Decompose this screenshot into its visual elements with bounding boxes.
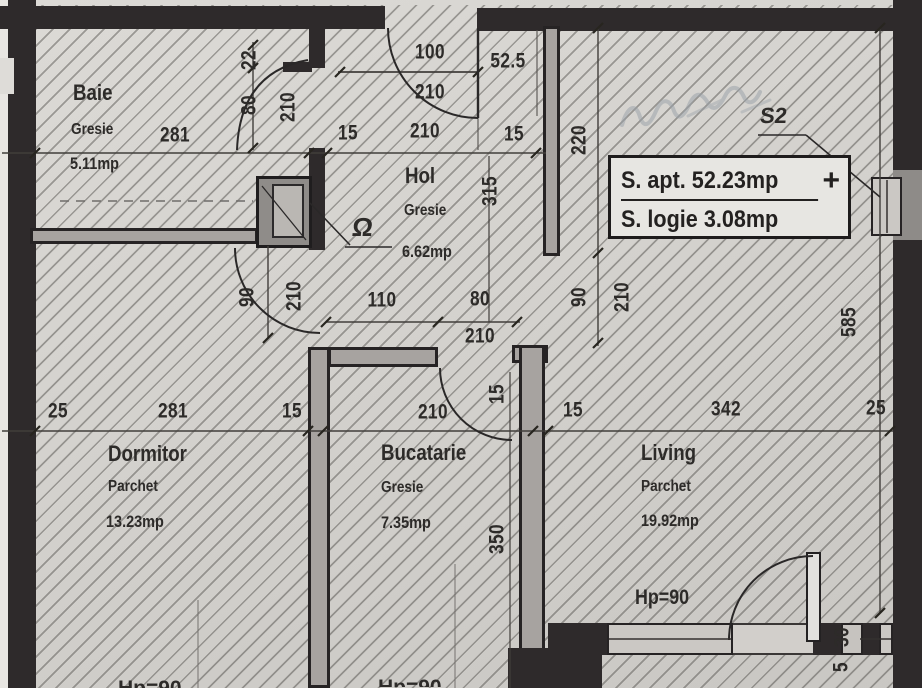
room-dormitor-name: Dormitor <box>108 441 187 467</box>
wall-right <box>893 0 922 688</box>
living-window-small <box>879 623 893 655</box>
dim-balcony-gap: 5 <box>831 662 852 672</box>
room-dormitor-finish: Parchet <box>108 478 158 496</box>
dim-kitchen-door-height: 210 <box>465 326 495 347</box>
shaft-inner <box>272 184 304 238</box>
wall-left <box>8 0 36 688</box>
dim-row-dorm: 281 <box>158 401 188 422</box>
room-bucatarie-finish: Gresie <box>381 479 423 497</box>
wall-dorm-kitchen <box>308 347 330 688</box>
room-bucatarie-area: 7.35mp <box>381 513 431 533</box>
dim-row-wall-b: 15 <box>563 400 583 421</box>
dim-hol-width: 210 <box>410 121 440 142</box>
area-summary-box: S. apt. 52.23mp S. logie 3.08mp + <box>608 155 851 239</box>
dim-kitchen-jamb: 15 <box>487 384 508 404</box>
parapet-label-left-clipped: Hp=90 <box>118 677 228 688</box>
wall-balcony-right <box>863 623 879 655</box>
room-baie-name: Baie <box>73 80 113 106</box>
dim-row-wall-a: 15 <box>282 401 302 422</box>
room-living-name: Living <box>641 440 696 466</box>
dim-wall-top-right: 15 <box>504 124 524 145</box>
dim-row-wall-right: 25 <box>866 398 886 419</box>
room-bucatarie-name: Bucatarie <box>381 440 466 466</box>
wall-baie-niche <box>283 62 312 72</box>
shaft-mark: Ω <box>347 212 377 245</box>
dim-dorm-door-width: 90 <box>237 287 258 307</box>
room-hol-name: Hol <box>405 163 435 189</box>
parapet-mid-text: Hp=90 <box>378 676 442 687</box>
wall-left-notch <box>0 58 14 94</box>
dim-hol-door-width: 90 <box>569 287 590 307</box>
room-baie-finish: Gresie <box>71 121 113 139</box>
s2-window <box>871 177 902 236</box>
dim-wall-top-left: 15 <box>338 123 358 144</box>
balcony-door-leaf <box>806 552 821 642</box>
plus-sign: + <box>822 164 840 198</box>
dim-row-wall-left: 25 <box>48 401 68 422</box>
dim-row-living: 342 <box>711 399 741 420</box>
parapet-label-mid-clipped: Hp=90 <box>378 676 488 687</box>
floor-plan: 100 210 52.5 281 15 210 15 110 80 210 25… <box>0 0 922 688</box>
s2-window-mark: S2 <box>756 103 792 131</box>
dim-kitchen-door-offset: 110 <box>367 290 396 311</box>
wall-kitchen-living <box>519 345 545 688</box>
dim-dorm-door-height: 210 <box>284 281 305 311</box>
balcony-door-opening <box>733 623 813 655</box>
room-living-finish: Parchet <box>641 478 691 496</box>
dim-balcony-wall: 30 <box>832 627 853 647</box>
apt-area-row: S. apt. 52.23mp <box>621 162 818 201</box>
wall-kitchen-top <box>328 347 438 367</box>
dim-kitchen-door-width: 80 <box>470 289 490 310</box>
parapet-label: Hp=90 <box>635 586 689 610</box>
dim-hol-length: 315 <box>480 176 501 206</box>
dim-entrance-width: 100 <box>415 42 445 63</box>
dim-row-kitchen: 210 <box>418 402 448 423</box>
room-baie-area: 5.11mp <box>70 154 119 174</box>
room-hol-finish: Gresie <box>404 202 446 220</box>
room-living-area: 19.92mp <box>641 511 699 531</box>
dim-baie-width: 281 <box>160 125 190 146</box>
wall-top-left <box>0 6 385 29</box>
dim-baie-door-width: 80 <box>239 95 260 115</box>
dim-hol-wall: 220 <box>569 125 590 155</box>
dim-niche: 52.5 <box>490 51 525 72</box>
living-window <box>607 623 733 655</box>
dim-kitchen-length: 350 <box>487 524 508 554</box>
dim-baie-door-offset: 22 <box>239 50 260 70</box>
logie-area-row: S. logie 3.08mp <box>621 201 818 238</box>
wall-logie-corner <box>508 648 602 688</box>
room-hol-area: 6.62mp <box>402 242 452 262</box>
dim-living-length: 585 <box>839 307 860 337</box>
room-dormitor-area: 13.23mp <box>106 512 164 532</box>
parapet-left-text: Hp=90 <box>118 677 182 688</box>
wall-hol-living <box>543 26 560 256</box>
wall-baie-bottom <box>30 228 258 244</box>
dim-entrance-height: 210 <box>415 82 445 103</box>
dim-hol-door-height: 210 <box>612 282 633 312</box>
dim-baie-door-height: 210 <box>278 92 299 122</box>
